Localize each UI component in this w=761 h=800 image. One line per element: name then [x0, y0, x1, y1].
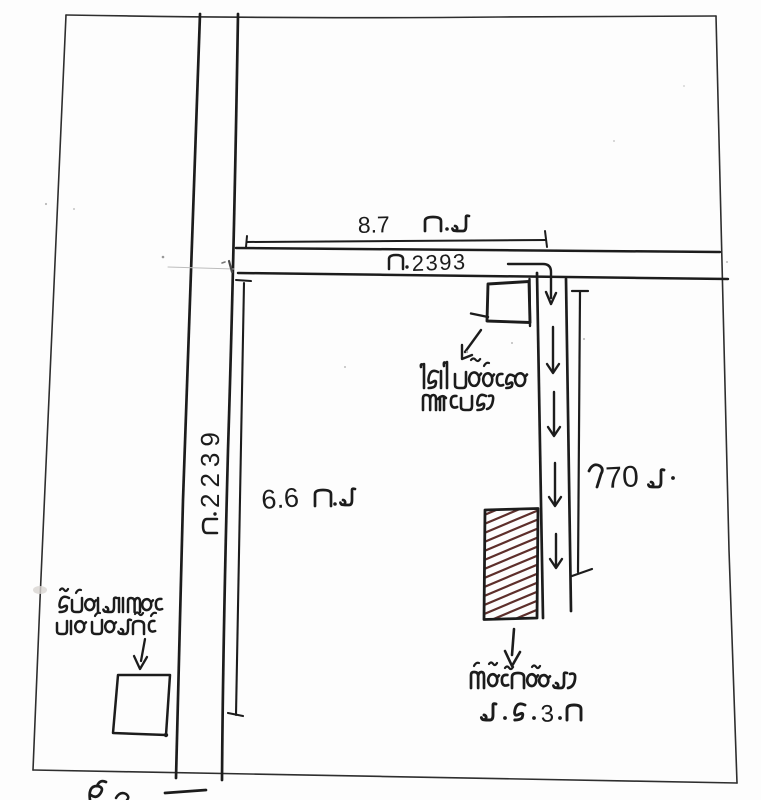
- svg-text:70: 70: [605, 460, 640, 495]
- svg-text:8.7: 8.7: [357, 211, 390, 238]
- svg-text:6.6: 6.6: [260, 482, 300, 515]
- svg-text:2393: 2393: [411, 249, 467, 276]
- svg-text:2239: 2239: [195, 426, 225, 508]
- svg-text:3: 3: [540, 700, 555, 728]
